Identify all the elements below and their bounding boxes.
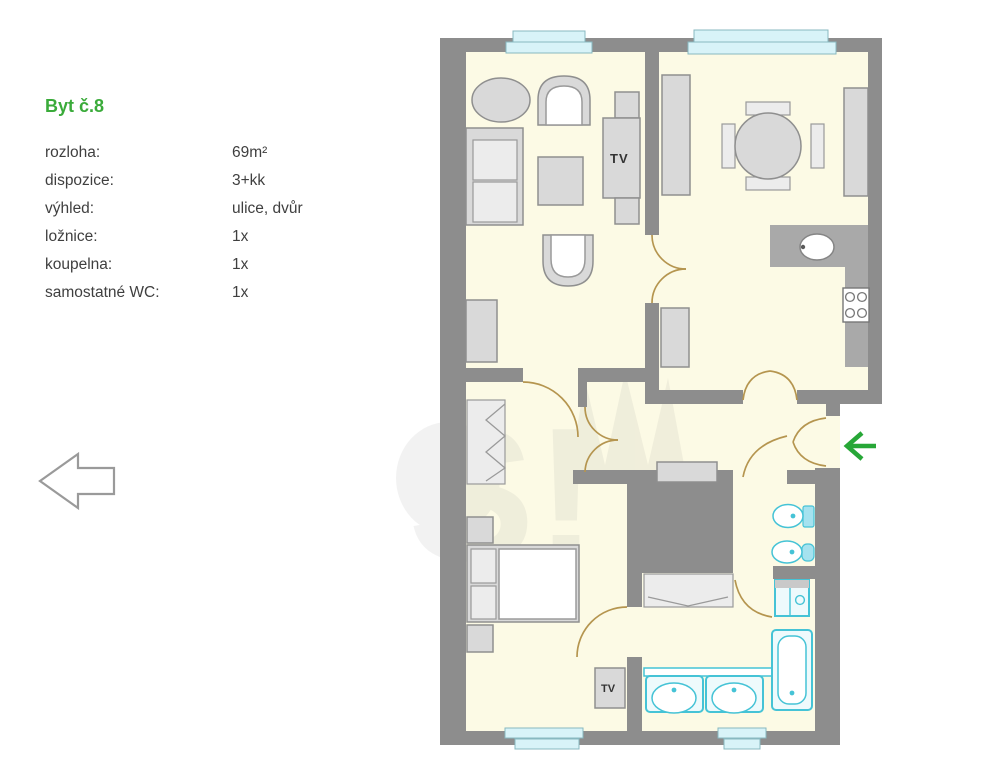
floorplan-page: { "legend": { "title": "Byt č.8", "title… [0,0,988,768]
bedroom-window [505,728,583,749]
nightstand-top [467,517,493,543]
tv-cabinet-bedroom: TV [595,668,625,708]
wardrobe [467,400,505,484]
sofa [466,128,523,225]
dresser [466,300,497,362]
floor-plan: S! [0,0,988,768]
cabinet-lower [661,308,689,367]
direction-arrow-icon [40,454,114,508]
dining-room-window [688,30,836,54]
bathtub [772,630,812,710]
bidet [772,541,814,563]
nightstand-bottom [467,625,493,652]
washbasin-unit [775,580,809,616]
bathroom-closet [644,574,733,607]
dining-table [735,113,801,179]
double-bed [467,545,579,622]
shoe-cabinet [657,462,717,482]
oval-table [472,78,530,122]
armchair-top [538,76,590,125]
bathroom-window [718,728,766,749]
tv-label-bedroom: TV [601,683,616,695]
cabinet-right [844,88,868,196]
entrance-arrow-icon [847,433,876,459]
living-room-window [506,31,592,53]
stove [843,288,869,322]
coffee-table [538,157,583,205]
cabinet-left [662,75,690,195]
sink-1 [646,676,703,713]
toilet [773,505,814,528]
tv-label-living: TV [610,151,629,166]
sink-2 [706,676,763,713]
armchair-bottom [543,235,593,286]
